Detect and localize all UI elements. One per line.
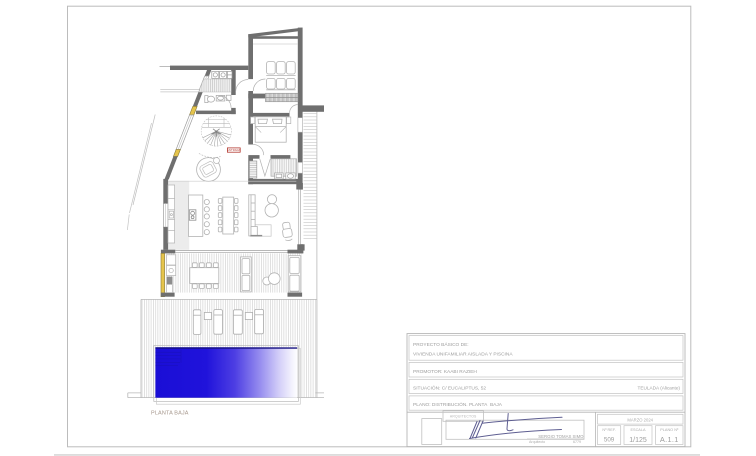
- svg-text:PLANO: DISTRIBUCIÓN. PLANTA B: PLANO: DISTRIBUCIÓN. PLANTA BAJA: [413, 401, 503, 408]
- svg-text:PROYECTO BÁSICO DE:: PROYECTO BÁSICO DE:: [413, 341, 469, 348]
- svg-text:SERGIO TOMAS SIMO: SERGIO TOMAS SIMO: [538, 434, 584, 439]
- svg-text:1/125: 1/125: [629, 437, 647, 444]
- svg-text:ESCALA: ESCALA: [631, 428, 646, 432]
- svg-text:509: 509: [604, 437, 615, 444]
- svg-text:PLANO Nº: PLANO Nº: [660, 428, 679, 432]
- svg-text:TEULADA (Alicante): TEULADA (Alicante): [638, 385, 681, 390]
- svg-text:SITUACIÓN: C/ EUCALIPTUS, 52: SITUACIÓN: C/ EUCALIPTUS, 52: [413, 384, 486, 391]
- svg-text:MARZO 2024: MARZO 2024: [627, 417, 653, 422]
- svg-text:ARQUITECTOS: ARQUITECTOS: [450, 414, 477, 418]
- svg-text:PLANTA BAJA: PLANTA BAJA: [151, 410, 189, 416]
- svg-text:A.1.1: A.1.1: [660, 435, 679, 444]
- svg-text:VIVIENDA UNIFAMILIAR AISLADA Y: VIVIENDA UNIFAMILIAR AISLADA Y PISCINA: [413, 352, 513, 358]
- svg-text:Nº REF.: Nº REF.: [602, 428, 615, 432]
- svg-text:PROMOTOR: KAABI RAZIEH: PROMOTOR: KAABI RAZIEH: [413, 369, 477, 375]
- svg-text:Arquitecto: Arquitecto: [529, 440, 545, 444]
- svg-text:6779: 6779: [573, 440, 581, 444]
- svg-text:ENTRADA: ENTRADA: [227, 148, 241, 152]
